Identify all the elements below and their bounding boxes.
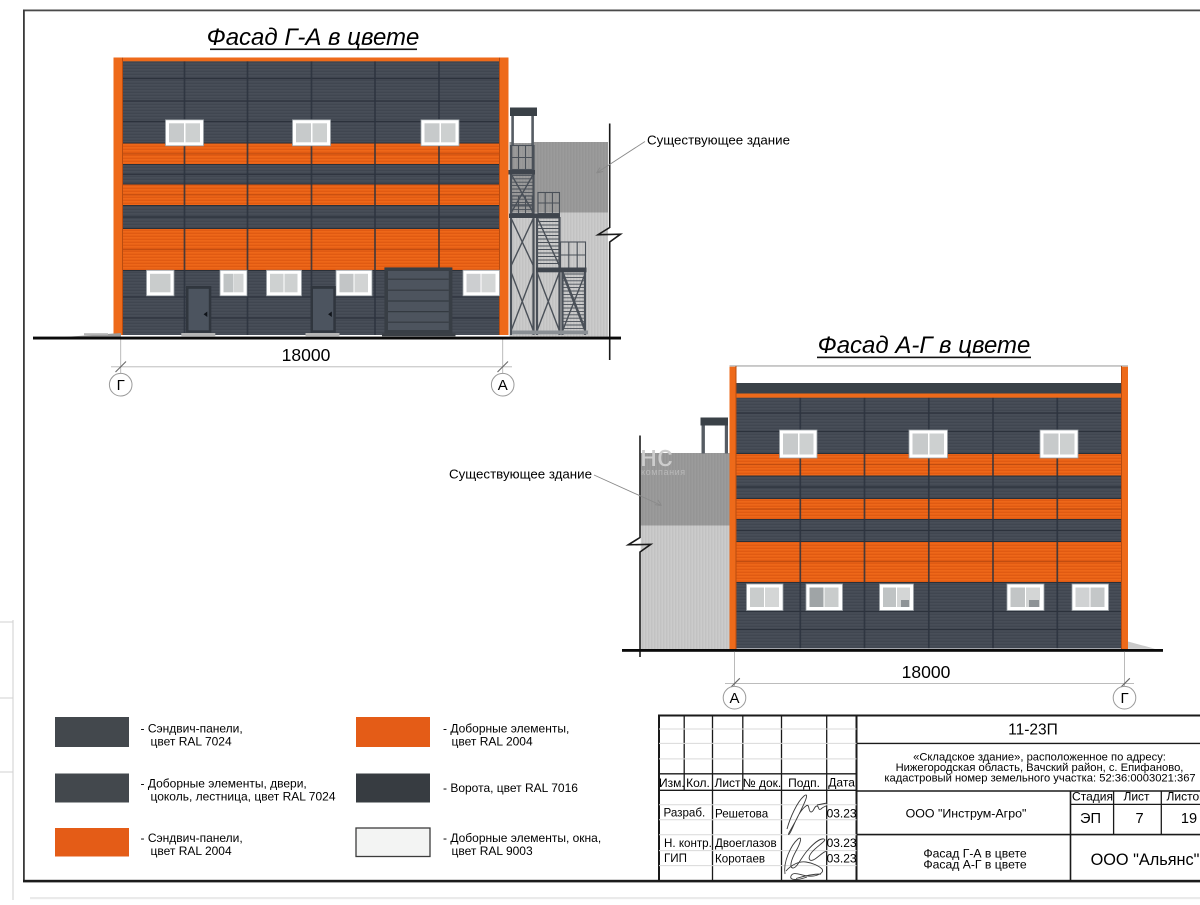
- svg-text:18000: 18000: [282, 345, 331, 365]
- svg-text:- Ворота, цвет RAL 7016: - Ворота, цвет RAL 7016: [443, 781, 578, 795]
- svg-text:кадастровый номер земельного у: кадастровый номер земельного участка: 52…: [884, 773, 1195, 785]
- svg-text:Дата: Дата: [828, 776, 855, 790]
- svg-text:ГИП: ГИП: [664, 852, 687, 865]
- svg-text:Коротаев: Коротаев: [715, 853, 765, 866]
- svg-text:03.23: 03.23: [827, 836, 857, 850]
- svg-text:компания: компания: [641, 467, 686, 477]
- svg-text:ЭП: ЭП: [1080, 811, 1101, 827]
- svg-text:Разраб.: Разраб.: [664, 807, 706, 820]
- svg-text:11-23П: 11-23П: [1008, 722, 1058, 739]
- svg-text:Стадия: Стадия: [1072, 789, 1113, 803]
- svg-text:А: А: [498, 377, 508, 394]
- svg-text:Изм.: Изм.: [659, 776, 685, 790]
- svg-text:03.23: 03.23: [827, 807, 857, 821]
- svg-text:цвет RAL 9003: цвет RAL 9003: [452, 844, 533, 858]
- svg-text:цвет RAL 7024: цвет RAL 7024: [151, 735, 232, 749]
- svg-text:- Доборные элементы, окна,: - Доборные элементы, окна,: [443, 831, 601, 845]
- svg-text:- Доборные элементы,: - Доборные элементы,: [443, 722, 569, 736]
- svg-text:Листов: Листов: [1167, 789, 1200, 803]
- svg-text:№ док.: № док.: [743, 776, 781, 790]
- svg-text:Кол.: Кол.: [686, 776, 710, 790]
- svg-text:Лист: Лист: [714, 776, 741, 790]
- svg-text:18000: 18000: [902, 662, 951, 682]
- svg-text:Решетова: Решетова: [715, 808, 769, 821]
- svg-text:Н. контр.: Н. контр.: [664, 837, 712, 850]
- svg-text:Подп.: Подп.: [788, 776, 820, 790]
- svg-text:Существующее здание: Существующее здание: [449, 467, 592, 482]
- svg-text:03.23: 03.23: [827, 852, 857, 866]
- svg-text:- Доборные элементы, двери,: - Доборные элементы, двери,: [141, 777, 307, 791]
- svg-text:19: 19: [1181, 811, 1197, 827]
- svg-text:Фасад Г-А в цвете: Фасад Г-А в цвете: [207, 24, 420, 51]
- svg-text:цоколь, лестница, цвет RAL 702: цоколь, лестница, цвет RAL 7024: [151, 790, 336, 804]
- svg-text:ООО "Инструм-Агро": ООО "Инструм-Агро": [906, 807, 1027, 821]
- svg-text:- Сэндвич-панели,: - Сэндвич-панели,: [141, 831, 243, 845]
- svg-text:- Сэндвич-панели,: - Сэндвич-панели,: [141, 722, 243, 736]
- svg-text:Г: Г: [1120, 690, 1128, 707]
- svg-text:Лист: Лист: [1123, 789, 1150, 803]
- svg-text:цвет RAL 2004: цвет RAL 2004: [151, 844, 232, 858]
- svg-text:7: 7: [1135, 811, 1143, 827]
- svg-text:Двоеглазов: Двоеглазов: [715, 837, 777, 850]
- svg-text:Фасад А-Г в цвете: Фасад А-Г в цвете: [818, 332, 1031, 359]
- svg-text:А: А: [729, 690, 739, 707]
- svg-text:ООО "Альянс": ООО "Альянс": [1091, 851, 1200, 869]
- svg-text:Г: Г: [117, 377, 125, 394]
- svg-text:Существующее здание: Существующее здание: [647, 133, 790, 148]
- svg-text:цвет RAL 2004: цвет RAL 2004: [452, 735, 533, 749]
- svg-text:Фасад А-Г в цвете: Фасад А-Г в цвете: [923, 857, 1027, 871]
